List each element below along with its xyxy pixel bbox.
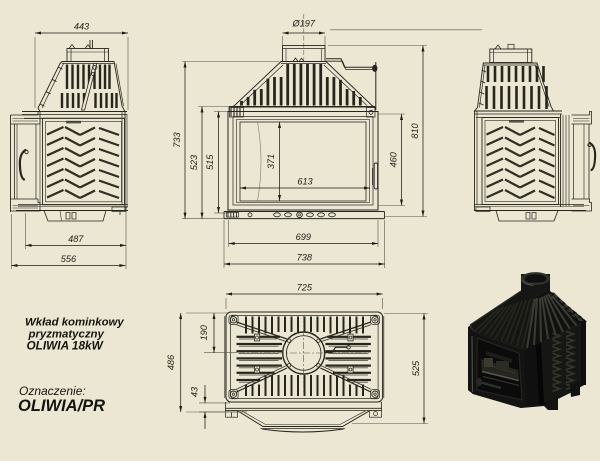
svg-text:810: 810 [410,122,420,138]
svg-text:515: 515 [205,154,215,170]
svg-text:738: 738 [297,253,313,263]
svg-text:Wkład kominkowy: Wkład kominkowy [25,317,124,329]
svg-text:371: 371 [266,154,276,169]
svg-text:486: 486 [166,354,176,370]
svg-text:523: 523 [189,154,199,170]
svg-text:699: 699 [296,232,311,242]
svg-text:43: 43 [190,386,200,397]
svg-text:733: 733 [172,132,182,148]
svg-text:556: 556 [61,254,77,264]
svg-text:460: 460 [388,151,398,167]
svg-text:487: 487 [68,234,84,244]
svg-text:443: 443 [74,22,90,32]
svg-text:525: 525 [411,360,421,376]
svg-text:725: 725 [297,283,313,293]
svg-text:Oznaczenie:: Oznaczenie: [19,384,86,398]
svg-text:OLIWIA 18kW: OLIWIA 18kW [27,339,104,353]
svg-text:OLIWIA/PR: OLIWIA/PR [18,397,105,415]
svg-text:613: 613 [297,177,313,187]
svg-text:190: 190 [199,324,209,340]
